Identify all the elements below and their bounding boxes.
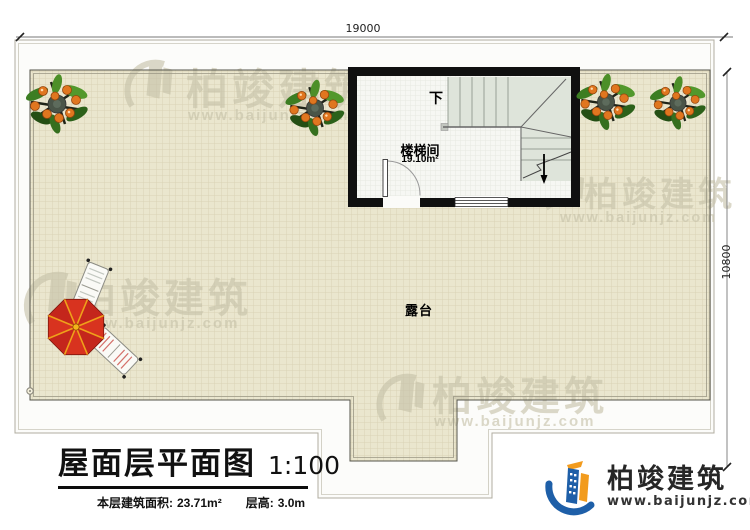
title-block: 屋面层平面图 1:100 本层建筑面积:23.71m²层高:3.0m <box>58 438 340 511</box>
window <box>455 196 508 208</box>
terrace-label: 露台 <box>405 300 433 319</box>
company-name: 柏竣建筑 <box>607 465 750 495</box>
dimension-right-value: 10800 <box>720 234 734 290</box>
floor-height-label: 层高: <box>246 496 274 510</box>
company-logo-icon <box>543 458 601 516</box>
floor-area-value: 23.71m² <box>177 496 222 510</box>
dimension-top-value: 19000 <box>335 22 391 35</box>
floor-height-value: 3.0m <box>278 496 305 510</box>
company-logo: 柏竣建筑 www.baijunjz.com <box>543 458 750 516</box>
watermark-text: 柏竣建筑 <box>584 175 736 214</box>
stair-room-area: 19.10m² <box>380 154 460 165</box>
watermark-text: 柏竣建筑 <box>186 66 370 113</box>
door-leaf <box>383 160 388 197</box>
company-website: www.baijunjz.com <box>607 494 750 509</box>
title-underline <box>58 486 308 489</box>
umbrella-icon <box>48 299 103 354</box>
stair-down-label: 下 <box>429 88 443 108</box>
drawing-scale: 1:100 <box>268 451 340 480</box>
floor-plan-drawing: 柏竣建筑 www.baijunjz.com 柏竣建筑 www.baijunjz.… <box>0 0 750 530</box>
drawing-title: 屋面层平面图 <box>58 438 256 483</box>
floor-area-label: 本层建筑面积: <box>97 496 173 510</box>
title-subtitle: 本层建筑面积:23.71m²层高:3.0m <box>97 494 340 511</box>
watermark-url: www.baijunjz.com <box>559 210 717 226</box>
stair-room <box>348 67 580 208</box>
drain-symbol <box>27 388 33 394</box>
